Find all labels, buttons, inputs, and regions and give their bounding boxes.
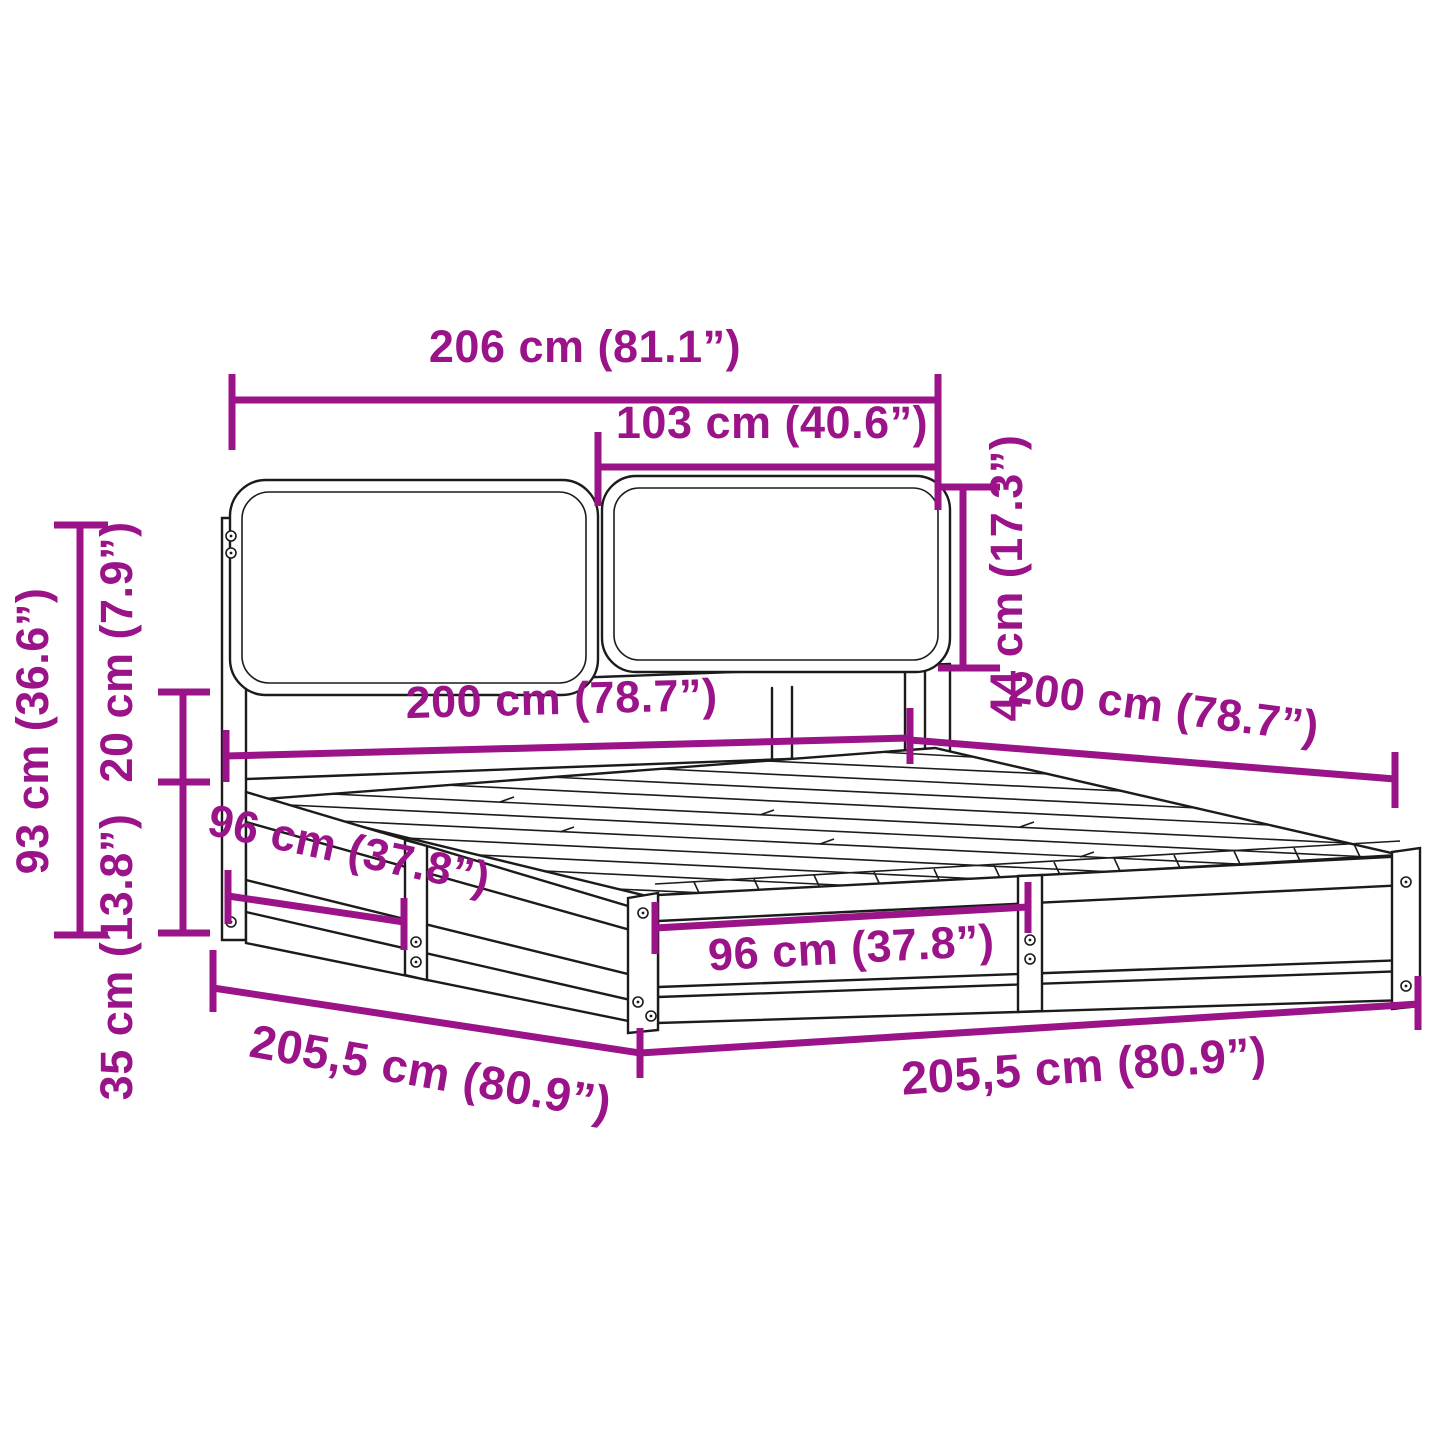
headboard-cushion-right [602, 476, 950, 672]
dim-label-headboard-height: 93 cm (36.6”) [7, 588, 58, 875]
dim-label-cushion-width: 103 cm (40.6”) [616, 397, 928, 448]
dim-label-bed-width: 200 cm (78.7”) [405, 669, 718, 728]
headboard-center-leg [772, 687, 792, 760]
dim-label-bed-length: 200 cm (78.7”) [1006, 661, 1322, 752]
dim-label-outer-length: 205,5 cm (80.9”) [246, 1014, 616, 1130]
dim-label-base-height: 35 cm (13.8”) [91, 814, 142, 1101]
headboard-cushion-left [230, 480, 598, 695]
bed-dimension-diagram: 206 cm (81.1”) 103 cm (40.6”) 44 cm (17.… [0, 0, 1445, 1445]
dim-label-width-total: 206 cm (81.1”) [429, 321, 741, 372]
dim-label-gap-height: 20 cm (7.9”) [91, 521, 142, 782]
diagram-canvas: 206 cm (81.1”) 103 cm (40.6”) 44 cm (17.… [0, 0, 1445, 1445]
dim-label-outer-width: 205,5 cm (80.9”) [899, 1026, 1268, 1104]
dim-gap-and-base: 20 cm (7.9”) 35 cm (13.8”) [91, 521, 210, 1100]
